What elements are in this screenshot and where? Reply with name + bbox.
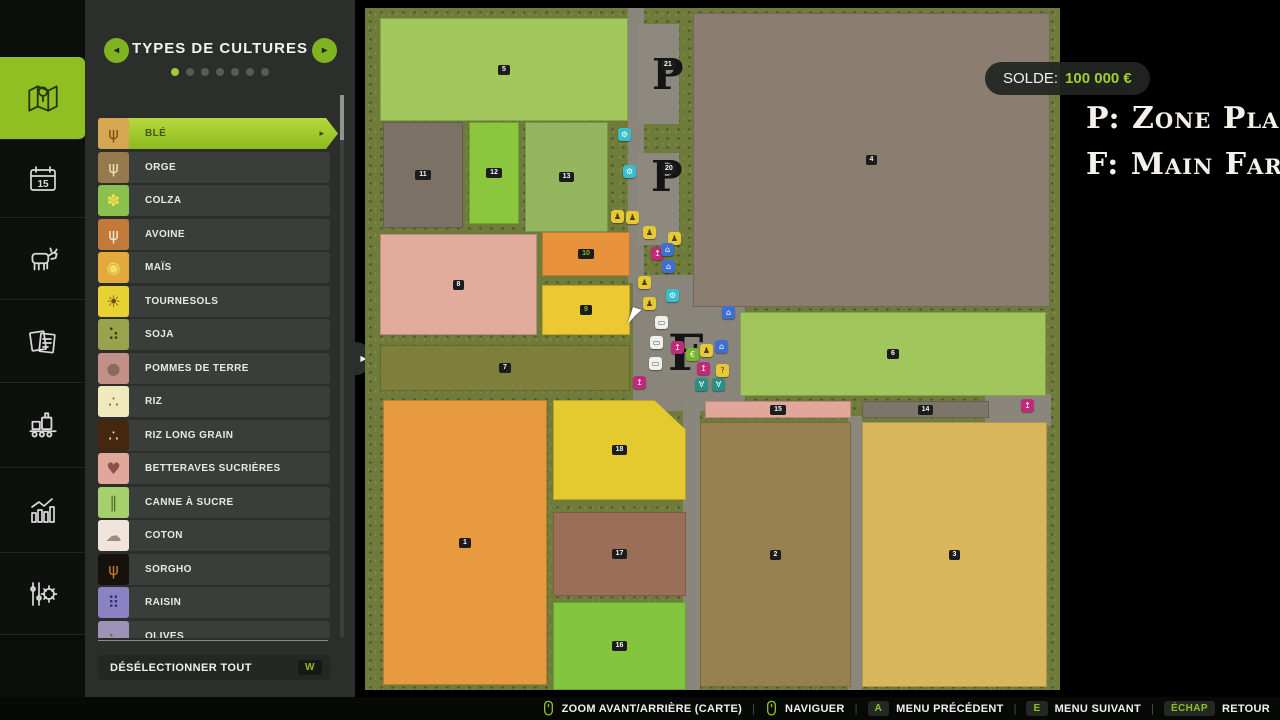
key-hint-échap: ÉCHAP xyxy=(1164,701,1215,716)
crop-label: AVOINE xyxy=(145,229,185,240)
crop-item-3[interactable]: ψAVOINE xyxy=(98,219,330,250)
map-view[interactable]: 511121381097118171646151423P21P20F⚙⚙⚙♟♟♟… xyxy=(365,8,1060,690)
scrollbar-thumb[interactable] xyxy=(340,95,344,140)
map-field-8[interactable]: 8 xyxy=(380,234,537,335)
crop-item-6[interactable]: ⠵SOJA xyxy=(98,319,330,350)
shop-marker[interactable]: ⌂ xyxy=(715,340,728,353)
sunflower-icon: ☀ xyxy=(98,286,129,317)
pagination-dot-6 xyxy=(261,68,269,76)
help-item-4: ÉCHAPRETOUR xyxy=(1164,701,1270,716)
svg-text:15: 15 xyxy=(37,179,49,190)
crop-label: POMMES DE TERRE xyxy=(145,363,249,374)
map-field-13[interactable]: 13 xyxy=(525,122,608,232)
fuel-marker[interactable]: ↥ xyxy=(1021,399,1034,412)
map-field-17[interactable]: 17 xyxy=(553,512,686,596)
vehicle-marker[interactable]: ▭ xyxy=(649,357,662,370)
field-number-badge: 5 xyxy=(498,65,510,75)
crop-item-10[interactable]: ♥BETTERAVES SUCRIÈRES xyxy=(98,453,330,484)
field-number-badge: 2 xyxy=(770,550,782,560)
tab-map[interactable] xyxy=(0,57,85,140)
map-icon xyxy=(24,79,62,117)
canola-icon: ✽ xyxy=(98,185,129,216)
crop-label: MAÏS xyxy=(145,262,172,273)
help-label: ZOOM AVANT/ARRIÈRE (CARTE) xyxy=(562,703,743,715)
statistics-icon xyxy=(25,493,61,529)
map-legend-line-1: P: Zone Pla xyxy=(1086,96,1280,142)
sale-marker[interactable]: € xyxy=(686,348,699,361)
production-marker[interactable]: ⚙ xyxy=(618,128,631,141)
balance-display: SOLDE: 100 000 € xyxy=(985,62,1150,95)
map-field-9[interactable]: 9 xyxy=(542,285,630,335)
worker-marker[interactable]: ♟ xyxy=(638,276,651,289)
help-item-0: ZOOM AVANT/ARRIÈRE (CARTE) xyxy=(542,700,743,717)
crop-label: RIZ LONG GRAIN xyxy=(145,430,233,441)
crop-item-4[interactable]: ◉MAÏS xyxy=(98,252,330,283)
crop-list: ψBLÉ▸ψORGE✽COLZAψAVOINE◉MAÏS☀TOURNESOLS⠵… xyxy=(98,118,338,638)
pagination-dot-0 xyxy=(171,68,179,76)
panel-divider xyxy=(98,640,328,641)
help-separator: | xyxy=(855,703,858,715)
field-number-badge: 10 xyxy=(578,249,594,259)
crop-label: BETTERAVES SUCRIÈRES xyxy=(145,463,281,474)
map-field-14[interactable]: 14 xyxy=(862,401,989,418)
animal-marker[interactable]: ∀ xyxy=(712,378,725,391)
pagination-dot-4 xyxy=(231,68,239,76)
field-number-badge: 14 xyxy=(918,405,934,415)
worker-marker[interactable]: ♟ xyxy=(643,226,656,239)
field-number-badge: 11 xyxy=(415,170,430,180)
map-legend-line-2: F: Main Far xyxy=(1086,142,1280,188)
pagination-dots xyxy=(85,68,355,76)
map-legend: P: Zone Pla F: Main Far xyxy=(1086,96,1280,188)
tab-settings[interactable] xyxy=(0,554,85,635)
balance-value: 100 000 € xyxy=(1065,70,1132,87)
documents-icon xyxy=(25,324,61,360)
animal-marker[interactable]: ∀ xyxy=(695,378,708,391)
production-marker[interactable]: ⚙ xyxy=(666,289,679,302)
vehicle-marker[interactable]: ▭ xyxy=(650,336,663,349)
cow-icon xyxy=(24,240,62,278)
olive-icon: ⠦ xyxy=(98,621,129,639)
help-item-1: NAVIGUER xyxy=(765,700,845,717)
crop-item-7[interactable]: ●POMMES DE TERRE xyxy=(98,353,330,384)
field-number-badge: 3 xyxy=(949,550,961,560)
crop-label: RIZ xyxy=(145,396,162,407)
map-field-6[interactable]: 6 xyxy=(740,312,1046,396)
map-field-4[interactable]: 4 xyxy=(693,13,1050,307)
map-field-11[interactable]: 11 xyxy=(383,122,463,228)
sugar-beet-icon: ♥ xyxy=(98,453,129,484)
oat-icon: ψ xyxy=(98,219,129,250)
soybean-icon: ⠵ xyxy=(98,319,129,350)
barley-icon: ψ xyxy=(98,152,129,183)
parcel-number-badge: 20 xyxy=(662,164,676,174)
shop-marker[interactable]: ⌂ xyxy=(661,243,674,256)
long-grain-rice-icon: ∴ xyxy=(98,420,129,451)
field-number-badge: 12 xyxy=(486,168,502,178)
deselect-all-label: DÉSÉLECTIONNER TOUT xyxy=(110,662,252,674)
crop-types-panel: ◂ ▸ TYPES DE CULTURES ψBLÉ▸ψORGE✽COLZAψA… xyxy=(85,0,355,697)
panel-title: TYPES DE CULTURES xyxy=(85,40,355,57)
map-field-3[interactable]: 3 xyxy=(862,422,1047,687)
worker-marker[interactable]: ♟ xyxy=(700,344,713,357)
tab-finances[interactable] xyxy=(0,301,85,383)
production-marker[interactable]: ⚙ xyxy=(623,165,636,178)
crop-label: COTON xyxy=(145,530,183,541)
production-icon xyxy=(24,407,62,445)
settings-icon xyxy=(25,576,61,612)
crop-item-0[interactable]: ψBLÉ▸ xyxy=(98,118,338,149)
vehicle-marker[interactable]: ▭ xyxy=(655,316,668,329)
parcel-number-badge: 21 xyxy=(661,60,675,70)
crop-list-scrollbar[interactable] xyxy=(340,95,344,637)
pagination-dot-5 xyxy=(246,68,254,76)
map-field-2[interactable]: 2 xyxy=(700,422,851,687)
mouse-move-icon xyxy=(765,700,778,717)
crop-item-15[interactable]: ⠦OLIVES xyxy=(98,621,330,639)
crop-item-13[interactable]: ψSORGHO xyxy=(98,554,330,585)
tab-production[interactable] xyxy=(0,384,85,468)
crop-item-9[interactable]: ∴RIZ LONG GRAIN xyxy=(98,420,330,451)
mouse-scroll-icon xyxy=(542,700,555,717)
wheat-icon: ψ xyxy=(98,118,129,149)
worker-marker[interactable]: ♟ xyxy=(643,297,656,310)
field-number-badge: 1 xyxy=(459,538,471,548)
crop-label: BLÉ xyxy=(145,128,166,139)
crop-label: COLZA xyxy=(145,195,181,206)
field-number-badge: 15 xyxy=(770,405,786,415)
crop-label: CANNE À SUCRE xyxy=(145,497,234,508)
crop-item-14[interactable]: ⠿RAISIN xyxy=(98,587,330,618)
main-menu-sidebar: 15 xyxy=(0,0,85,697)
crop-label: SOJA xyxy=(145,329,174,340)
map-field-5[interactable]: 5 xyxy=(380,18,628,121)
calendar-icon: 15 xyxy=(25,161,61,197)
selected-arrow-icon: ▸ xyxy=(319,128,324,139)
field-number-badge: 16 xyxy=(612,641,628,651)
crop-item-8[interactable]: ∴RIZ xyxy=(98,386,330,417)
pagination-dot-1 xyxy=(186,68,194,76)
help-label: RETOUR xyxy=(1222,703,1270,715)
field-number-badge: 18 xyxy=(612,445,628,455)
field-number-badge: 9 xyxy=(580,305,592,315)
tab-statistics[interactable] xyxy=(0,469,85,553)
help-separator: | xyxy=(1151,703,1154,715)
fuel-marker[interactable]: ↥ xyxy=(697,362,710,375)
key-hint-a: A xyxy=(868,701,890,716)
map-field-16[interactable]: 16 xyxy=(553,602,686,690)
crop-label: TOURNESOLS xyxy=(145,296,218,307)
crop-item-5[interactable]: ☀TOURNESOLS xyxy=(98,286,330,317)
key-hint-w: W xyxy=(298,660,322,675)
worker-marker[interactable]: ♟ xyxy=(611,210,624,223)
rice-icon: ∴ xyxy=(98,386,129,417)
tab-calendar[interactable]: 15 xyxy=(0,141,85,218)
crop-label: ORGE xyxy=(145,162,176,173)
map-field-10[interactable]: 10 xyxy=(542,232,630,276)
pagination-dot-3 xyxy=(216,68,224,76)
shop-marker[interactable]: ⌂ xyxy=(722,306,735,319)
field-number-badge: 8 xyxy=(453,280,465,290)
fuel-marker[interactable]: ↥ xyxy=(633,376,646,389)
tab-animals[interactable] xyxy=(0,219,85,300)
pagination-dot-2 xyxy=(201,68,209,76)
input-help-bar: ZOOM AVANT/ARRIÈRE (CARTE)|NAVIGUER|AMEN… xyxy=(0,697,1280,720)
potato-icon: ● xyxy=(98,353,129,384)
help-item-3: EMENU SUIVANT xyxy=(1026,701,1141,716)
crop-label: RAISIN xyxy=(145,597,181,608)
help-label: MENU PRÉCÉDENT xyxy=(896,703,1004,715)
deselect-all-button[interactable]: DÉSÉLECTIONNER TOUT W xyxy=(98,655,330,680)
field-number-badge: 6 xyxy=(887,349,899,359)
balance-label: SOLDE: xyxy=(1003,70,1058,87)
crop-label: OLIVES xyxy=(145,631,184,639)
map-field-7[interactable]: 7 xyxy=(380,345,630,391)
fuel-marker[interactable]: ↥ xyxy=(671,341,684,354)
grape-icon: ⠿ xyxy=(98,587,129,618)
sorghum-icon: ψ xyxy=(98,554,129,585)
map-field-12[interactable]: 12 xyxy=(469,122,519,224)
help-label: NAVIGUER xyxy=(785,703,845,715)
help-item-2: AMENU PRÉCÉDENT xyxy=(868,701,1004,716)
key-hint-e: E xyxy=(1026,701,1047,716)
crop-item-12[interactable]: ☁COTON xyxy=(98,520,330,551)
help-label: MENU SUIVANT xyxy=(1055,703,1142,715)
sugarcane-icon: ∥ xyxy=(98,487,129,518)
field-number-badge: 13 xyxy=(559,172,575,182)
crop-label: SORGHO xyxy=(145,564,192,575)
game-screen: 15 xyxy=(0,0,1280,720)
field-number-badge: 7 xyxy=(499,363,511,373)
worker-marker[interactable]: ♟ xyxy=(626,211,639,224)
crop-item-2[interactable]: ✽COLZA xyxy=(98,185,330,216)
field-number-badge: 4 xyxy=(866,155,878,165)
help-marker[interactable]: ? xyxy=(716,364,729,377)
map-field-15[interactable]: 15 xyxy=(705,401,851,418)
corn-icon: ◉ xyxy=(98,252,129,283)
crop-item-1[interactable]: ψORGE xyxy=(98,152,330,183)
map-field-1[interactable]: 1 xyxy=(383,400,547,685)
map-field-18[interactable]: 18 xyxy=(553,400,686,500)
shop-marker[interactable]: ⌂ xyxy=(662,260,675,273)
cotton-icon: ☁ xyxy=(98,520,129,551)
help-separator: | xyxy=(1014,703,1017,715)
map-letter-p-1: P xyxy=(651,156,683,198)
crop-item-11[interactable]: ∥CANNE À SUCRE xyxy=(98,487,330,518)
field-number-badge: 17 xyxy=(612,549,628,559)
help-separator: | xyxy=(752,703,755,715)
